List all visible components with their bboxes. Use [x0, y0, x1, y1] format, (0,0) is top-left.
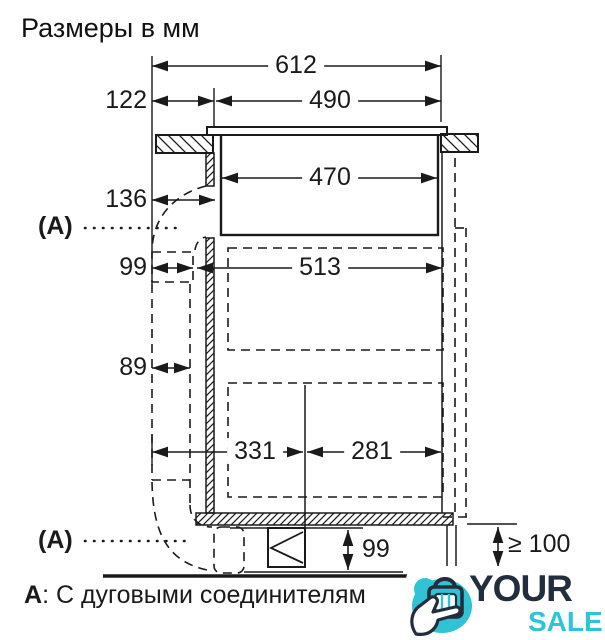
dim-99-bottom-label: 99 [362, 536, 390, 562]
dim-281-label: 281 [344, 438, 400, 464]
dim-490-label: 490 [302, 87, 358, 113]
section-a-marker-top: (A) [38, 213, 73, 239]
watermark-word-sale: SALE [528, 606, 603, 638]
page-title: Размеры в мм [21, 13, 200, 44]
footnote-marker: А [24, 581, 42, 609]
dim-99-top-label: 99 [119, 254, 147, 280]
dim-89-label: 89 [119, 354, 147, 380]
section-a-marker-bottom: (A) [38, 527, 73, 553]
dim-min100-label: ≥ 100 [508, 531, 570, 557]
dim-470-label: 470 [302, 164, 358, 190]
dim-136-label: 136 [105, 186, 147, 212]
dim-331-label: 331 [227, 438, 283, 464]
dim-122-label: 122 [105, 87, 147, 113]
watermark-word-your: YOUR [469, 568, 572, 610]
dimension-diagram-page: Размеры в мм 612 122 490 470 136 99 513 … [0, 0, 605, 640]
footnote-caption: А: С дуговыми соединителям [24, 581, 366, 610]
footnote-text: : С дуговыми соединителям [42, 581, 366, 609]
dim-612-label: 612 [268, 52, 324, 78]
fan-outlet [268, 528, 305, 567]
watermark-logo: YOUR SALE [406, 566, 605, 640]
dim-513-label: 513 [292, 254, 348, 280]
